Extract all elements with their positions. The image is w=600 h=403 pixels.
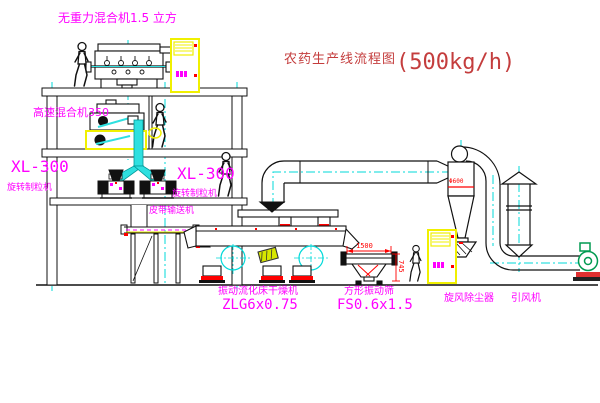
label-belt-conveyor: 皮带输送机 — [149, 207, 194, 216]
label-cyclone: 旋风除尘器 — [444, 294, 494, 304]
label-granulator-left-name: 旋转制粒机 — [7, 184, 52, 193]
drop-chute — [131, 205, 147, 227]
fluid-bed-dryer-machine — [184, 202, 359, 283]
person-ground — [410, 245, 421, 281]
person-second-floor — [153, 104, 167, 148]
label-fan: 引风机 — [511, 294, 541, 304]
gravity-mixer-machine — [86, 44, 172, 88]
label-dryer-name: 振动流化床干燥机 — [218, 287, 298, 297]
label-sieve-model: FS0.6x1.5 — [337, 298, 413, 312]
label-gravity-mixer: 无重力混合机1.5 立方 — [58, 12, 177, 24]
label-granulator-left-model: XL-300 — [11, 159, 69, 175]
control-cabinet-ground — [428, 230, 456, 283]
cad-flow-diagram: 农药生产线流程图(500kg/h) 无重力混合机1.5 立方 高速混合机350 … — [0, 0, 600, 403]
draft-fan-machine — [573, 243, 600, 281]
label-granulator-right-name: 旋转制粒机 — [172, 190, 217, 199]
dim-sieve-length: 1500 — [356, 243, 373, 250]
label-dryer-model: ZLG6x0.75 — [222, 298, 298, 312]
dim-sieve-height: 745 — [397, 260, 404, 273]
diagram-title: 农药生产线流程图(500kg/h) — [284, 48, 515, 75]
dim-cyclone-diameter: Φ600 — [449, 179, 463, 185]
person-roof — [75, 43, 89, 87]
label-granulator-right-model: XL-300 — [177, 166, 235, 182]
label-high-speed-mixer: 高速混合机350 — [33, 107, 109, 118]
title-capacity: (500kg/h) — [396, 50, 515, 75]
control-cabinet-top — [171, 39, 199, 92]
title-text: 农药生产线流程图 — [284, 52, 396, 67]
label-sieve-name: 方形振动筛 — [344, 287, 394, 297]
vibrating-sieve-machine — [341, 246, 400, 284]
exhaust-duct — [262, 161, 450, 203]
